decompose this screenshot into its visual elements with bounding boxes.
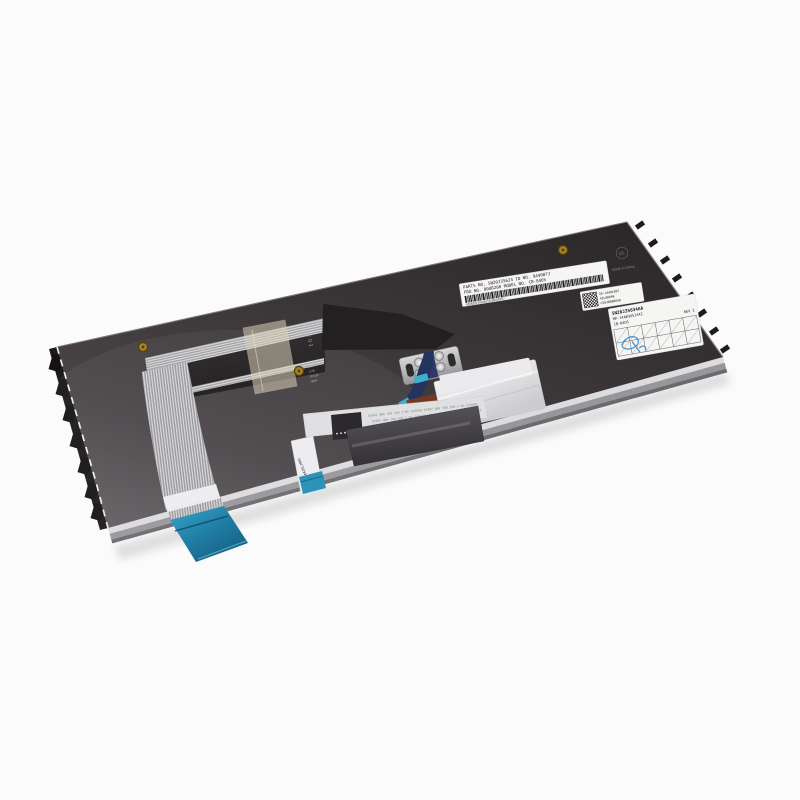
ul-mark-text: UL (618, 250, 626, 257)
brass-screw-center (297, 369, 300, 372)
product-photo: C01 0B5 C7B 2P133 9W8 (0, 0, 800, 800)
brass-screw-center (561, 248, 564, 251)
photo-stage: C01 0B5 C7B 2P133 9W8 (0, 0, 800, 800)
qr-code (582, 292, 598, 308)
brass-screw-center (141, 345, 144, 348)
